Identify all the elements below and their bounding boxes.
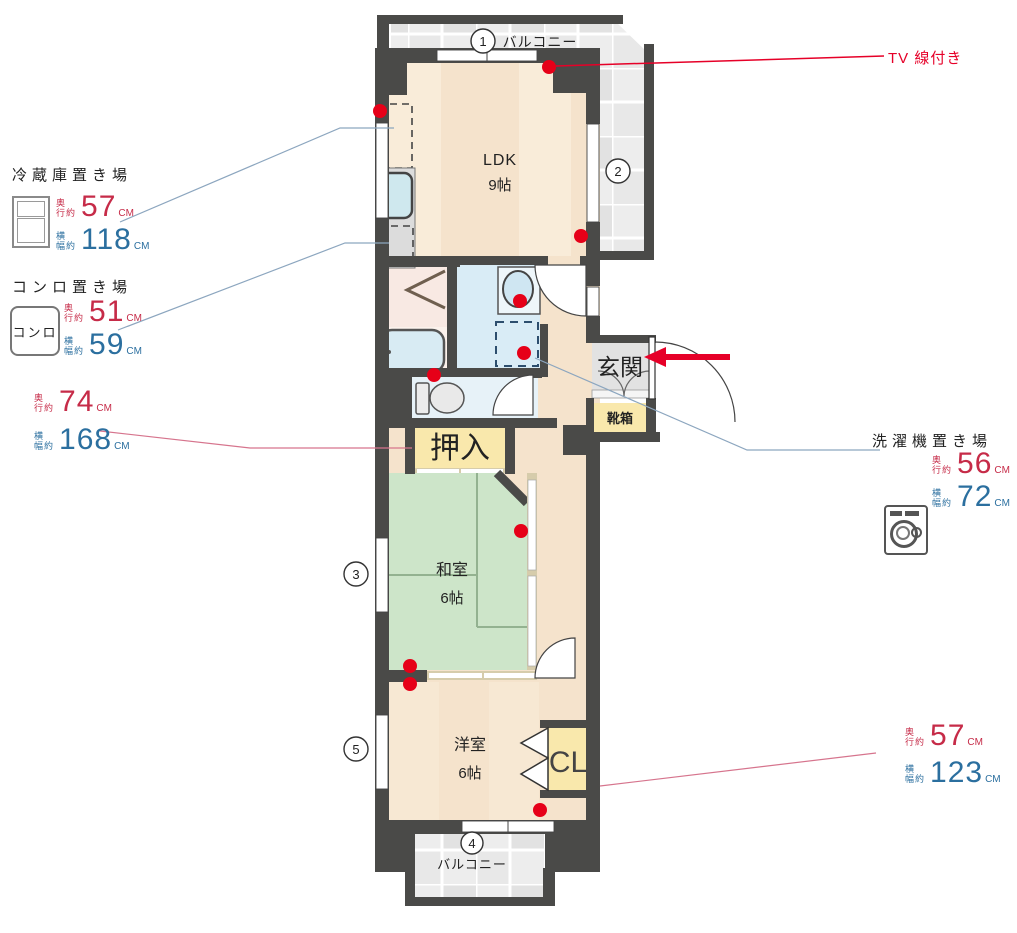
depth-label-bottom: 行約: [905, 737, 925, 747]
depth-label-bottom: 行約: [64, 313, 84, 323]
fridge-title-text: 冷蔵庫置き場: [12, 167, 132, 184]
washer-width-unit: CM: [994, 498, 1010, 509]
ldk-size-label: 9帖: [488, 177, 511, 194]
washer-depth-row: 奥 行約 56 CM: [932, 450, 1010, 478]
stove-leader-line: [118, 243, 389, 330]
width-label-bottom: 幅約: [56, 241, 76, 251]
outlet-dot: [533, 803, 547, 817]
balcony-top-label: バルコニー: [503, 34, 578, 50]
youshitsu-window: [376, 715, 388, 789]
oshiire-width-unit: CM: [114, 441, 130, 452]
marker-2-number: 2: [614, 164, 621, 179]
depth-label: 奥 行約: [56, 198, 76, 218]
marker-1-number: 1: [479, 34, 486, 49]
fridge-width-value: 118: [81, 226, 132, 254]
cl-width-unit: CM: [985, 774, 1001, 785]
cl-leader-line: [600, 753, 876, 786]
outlet-dot: [517, 346, 531, 360]
outlet-dot: [514, 524, 528, 538]
width-label-bottom: 幅約: [932, 498, 952, 508]
floorplan-page: LDK 9帖 和室 6帖 洋室 6帖 押入 玄関 靴箱 CL バルコニー バルコ…: [0, 0, 1017, 933]
washing-machine-icon: [884, 505, 928, 555]
stove-width-value: 59: [89, 331, 124, 359]
depth-label-top: 奥: [56, 198, 76, 208]
kitchen-window: [376, 123, 388, 218]
oshiire-depth-value: 74: [59, 388, 94, 416]
youshitsu-size-label: 6帖: [458, 765, 481, 782]
washitsu-window: [376, 538, 388, 612]
washitsu-label: 和室: [436, 561, 468, 579]
washitsu-size-label: 6帖: [440, 590, 463, 607]
fridge-depth-value: 57: [81, 193, 116, 221]
genkan-step: [592, 390, 650, 398]
depth-label-top: 奥: [905, 727, 925, 737]
depth-label-bottom: 行約: [932, 465, 952, 475]
outlet-dot: [403, 659, 417, 673]
washer-icon-panel: [905, 511, 919, 516]
oshiire-width-value: 168: [59, 426, 112, 454]
fridge-width-unit: CM: [134, 241, 150, 252]
sliding-door-panel: [429, 673, 482, 678]
outlet-dot: [403, 677, 417, 691]
width-label-bottom: 幅約: [905, 774, 925, 784]
marker-2: 2: [606, 159, 630, 183]
width-label-top: 横: [56, 231, 76, 241]
depth-label-bottom: 行約: [56, 208, 76, 218]
stove-title-text: コンロ置き場: [12, 279, 132, 296]
width-label-bottom: 幅約: [34, 441, 54, 451]
washer-depth-unit: CM: [994, 465, 1010, 476]
genkan-label: 玄関: [597, 354, 643, 380]
depth-label: 奥 行約: [905, 727, 925, 747]
outlet-dot: [542, 60, 556, 74]
oshiire-width-row: 横 幅約 168 CM: [34, 426, 130, 454]
stove-depth-value: 51: [89, 298, 124, 326]
youshitsu-label: 洋室: [454, 736, 486, 754]
oshiire-depth-row: 奥 行約 74 CM: [34, 388, 130, 416]
sliding-door-panel: [528, 480, 536, 570]
stove-depth-unit: CM: [126, 313, 142, 324]
width-label: 横 幅約: [34, 431, 54, 451]
outlet-dot: [373, 104, 387, 118]
width-label: 横 幅約: [905, 764, 925, 784]
washer-depth-value: 56: [957, 450, 992, 478]
marker-4-number: 4: [468, 836, 475, 851]
sliding-door-panel: [484, 673, 537, 678]
washer-icon-door-inner: [896, 526, 910, 540]
hall-right-window: [587, 287, 599, 316]
oshiire-door-panel: [417, 469, 459, 473]
depth-label: 奥 行約: [932, 455, 952, 475]
washer-width-value: 72: [957, 483, 992, 511]
cl-depth-row: 奥 行約 57 CM: [905, 722, 1001, 750]
fridge-leader-line: [120, 128, 394, 222]
fridge-icon: [12, 196, 50, 248]
cl-width-row: 横 幅約 123 CM: [905, 759, 1001, 787]
outlet-dot: [427, 368, 441, 382]
width-label: 横 幅約: [64, 336, 84, 356]
depth-label-top: 奥: [932, 455, 952, 465]
fridge-width-row: 横 幅約 118 CM: [56, 226, 149, 254]
washer-width-row: 横 幅約 72 CM: [932, 483, 1010, 511]
washer-dimensions: 奥 行約 56 CM 横 幅約 72 CM: [932, 450, 1010, 511]
oshiire-depth-unit: CM: [96, 403, 112, 414]
stove-width-unit: CM: [126, 346, 142, 357]
fridge-depth-unit: CM: [118, 208, 134, 219]
entrance-door-leaf: [649, 337, 655, 399]
entrance-arrow: [644, 347, 730, 367]
outlet-dot: [574, 229, 588, 243]
stove-icon: コンロ: [10, 306, 60, 356]
oshiire-door-panel: [461, 469, 503, 473]
toilet: [416, 383, 464, 414]
tv-line-annotation: TV 線付き: [888, 47, 962, 68]
cl-width-value: 123: [930, 759, 983, 787]
stove-dimensions: 奥 行約 51 CM 横 幅約 59 CM: [64, 298, 142, 359]
floorplan-drawing: LDK 9帖 和室 6帖 洋室 6帖 押入 玄関 靴箱 CL バルコニー バルコ…: [0, 0, 1017, 933]
width-label: 横 幅約: [932, 488, 952, 508]
depth-label: 奥 行約: [64, 303, 84, 323]
cl-depth-value: 57: [930, 722, 965, 750]
fridge-depth-row: 奥 行約 57 CM: [56, 193, 149, 221]
balcony-bottom-label: バルコニー: [437, 857, 507, 872]
fridge-icon-door: [17, 218, 45, 243]
marker-3: 3: [344, 562, 368, 586]
washer-icon-knob: [911, 527, 922, 538]
width-label-top: 横: [34, 431, 54, 441]
width-label-top: 横: [905, 764, 925, 774]
cl-label: CL: [549, 746, 587, 779]
fridge-icon-freezer: [17, 201, 45, 217]
oshiire-label: 押入: [430, 432, 490, 465]
cl-depth-unit: CM: [967, 737, 983, 748]
stove-icon-label: コンロ: [12, 322, 57, 341]
ldk-label: LDK: [483, 152, 517, 169]
stove-annotation-title: コンロ置き場: [12, 276, 132, 297]
oshiire-leader-line: [100, 431, 412, 448]
width-label-top: 横: [932, 488, 952, 498]
stove-width-row: 横 幅約 59 CM: [64, 331, 142, 359]
depth-label-top: 奥: [34, 393, 54, 403]
depth-label: 奥 行約: [34, 393, 54, 413]
sliding-door-panel: [528, 576, 536, 666]
depth-label-bottom: 行約: [34, 403, 54, 413]
stove-depth-row: 奥 行約 51 CM: [64, 298, 142, 326]
depth-label-top: 奥: [64, 303, 84, 313]
ldk-right-window: [587, 124, 599, 222]
marker-3-number: 3: [352, 567, 359, 582]
width-label: 横 幅約: [56, 231, 76, 251]
marker-5-number: 5: [352, 742, 359, 757]
marker-1: 1: [471, 29, 495, 53]
width-label-bottom: 幅約: [64, 346, 84, 356]
outlet-dot: [513, 294, 527, 308]
width-label-top: 横: [64, 336, 84, 346]
cl-dimensions: 奥 行約 57 CM 横 幅約 123 CM: [905, 722, 1001, 787]
tv-line-label: TV 線付き: [888, 50, 962, 67]
oshiire-dimensions: 奥 行約 74 CM 横 幅約 168 CM: [34, 388, 130, 454]
washer-icon-panel: [890, 511, 902, 516]
marker-4: 4: [461, 832, 483, 854]
fridge-dimensions: 奥 行約 57 CM 横 幅約 118 CM: [56, 193, 149, 254]
fridge-annotation-title: 冷蔵庫置き場: [12, 164, 132, 185]
shoebox-label: 靴箱: [607, 411, 633, 426]
marker-5: 5: [344, 737, 368, 761]
